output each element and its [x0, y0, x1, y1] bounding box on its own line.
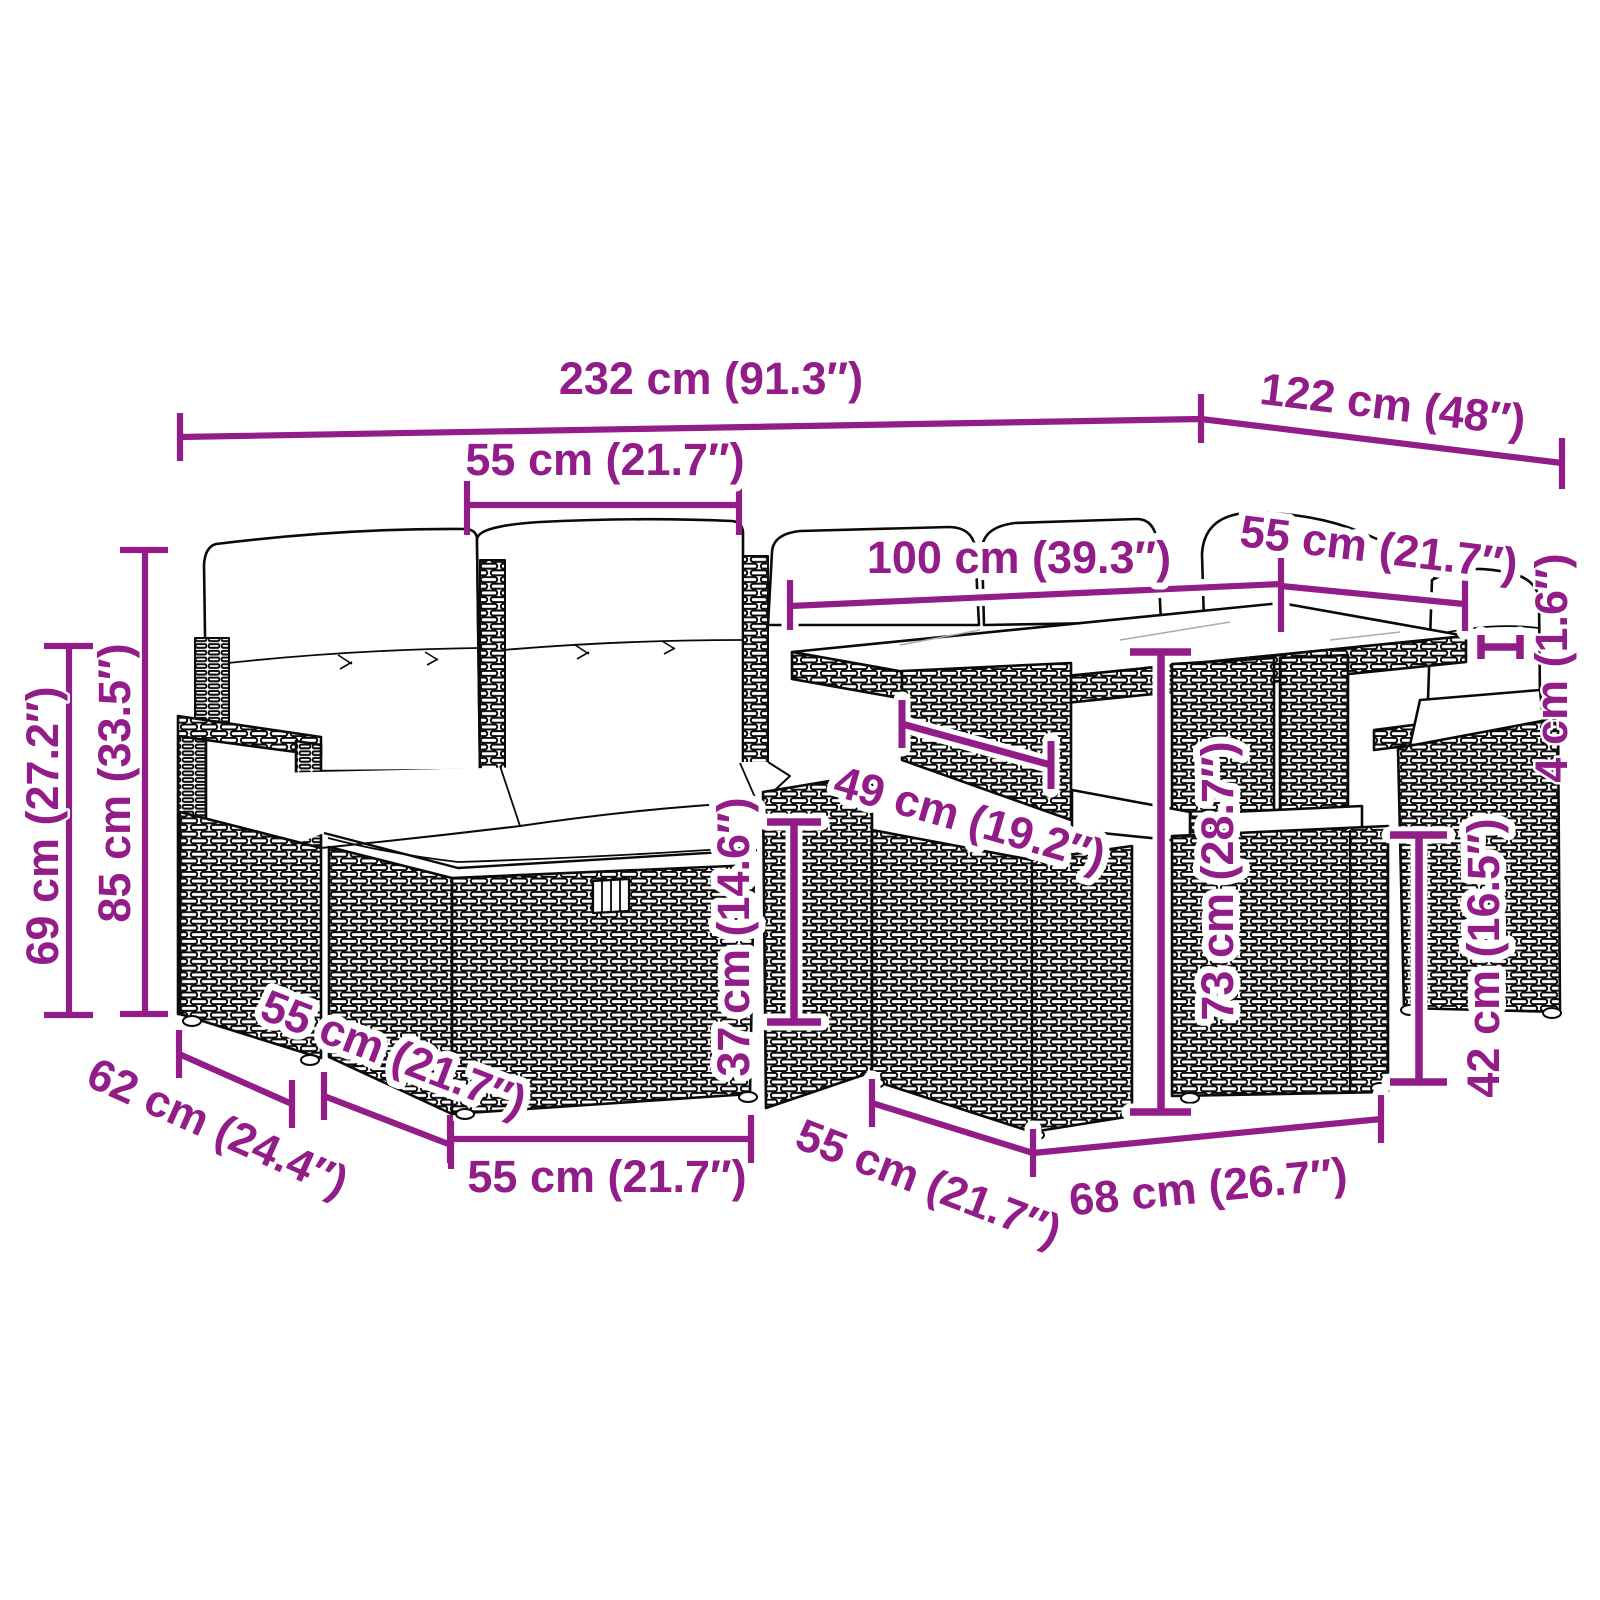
svg-text:55 cm (21.7″): 55 cm (21.7″) — [467, 1151, 746, 1202]
svg-text:69 cm (27.2″): 69 cm (27.2″) — [17, 686, 68, 965]
svg-text:55 cm (21.7″): 55 cm (21.7″) — [465, 434, 744, 485]
svg-text:73 cm (28.7″): 73 cm (28.7″) — [1192, 741, 1243, 1020]
svg-text:232 cm (91.3″): 232 cm (91.3″) — [559, 353, 863, 404]
svg-text:37 cm (14.6″): 37 cm (14.6″) — [708, 797, 759, 1076]
svg-text:100 cm (39.3″): 100 cm (39.3″) — [867, 532, 1171, 583]
svg-text:4 cm (1.6″): 4 cm (1.6″) — [1526, 553, 1577, 782]
svg-text:85 cm (33.5″): 85 cm (33.5″) — [89, 643, 140, 922]
svg-text:42 cm (16.5″): 42 cm (16.5″) — [1458, 818, 1509, 1097]
